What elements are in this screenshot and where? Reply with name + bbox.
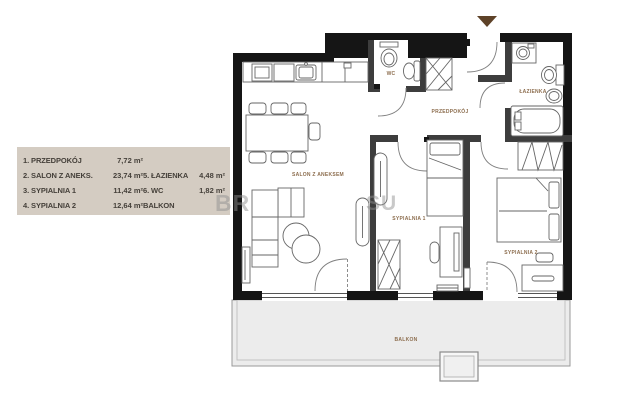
bedroom2-door-arc [481,142,508,169]
watermark-text: SU [366,192,397,216]
kitchen-faucet [305,63,308,66]
salon-radiator [242,247,250,283]
bedroom2-wardrobe [518,142,563,170]
room-label-balkon: BALKON [395,337,418,343]
bedroom2-balcony-door-arc [487,262,517,292]
room-label-salon: SALON Z ANEKSEM [292,172,344,178]
bathroom-toilet [556,65,564,85]
room-label-sypialnia1: SYPIALNIA 1 [392,216,425,222]
salon-balcony-door-arc [315,259,347,291]
bedroom1-chair [430,242,439,263]
dining-table [246,115,308,151]
window-bedroom2 [483,291,557,301]
floorplan-drawing [0,0,620,400]
wc-door-arc [378,88,406,116]
sofa [252,188,320,267]
window-salon [262,291,347,301]
dining-set [246,103,320,163]
bathroom-door-arc [480,83,505,108]
room-label-przedpokoj: PRZEDPOKÓJ [432,109,469,115]
balcony-table [440,352,478,381]
room-label-lazienka: ŁAZIENKA [519,89,546,95]
round-table [292,235,320,263]
bedroom2-furniture [464,142,563,291]
watermark-text: BR [215,190,250,217]
floorplan-page: 1. PRZEDPOKÓJ 7,72 m² 2. SALON Z ANEKS. … [0,0,620,400]
wc-toilet [380,42,398,47]
windows [262,291,557,301]
entrance-door-arc [467,42,497,72]
room-label-sypialnia2: SYPIALNIA 2 [504,250,537,256]
kitchen-counter [243,62,368,82]
hallway-closet [426,58,452,90]
room-label-wc: WC [387,71,396,77]
bedroom2-radiator [464,268,470,288]
bedroom1-door-arc [398,142,427,171]
window-bedroom1 [398,291,433,301]
